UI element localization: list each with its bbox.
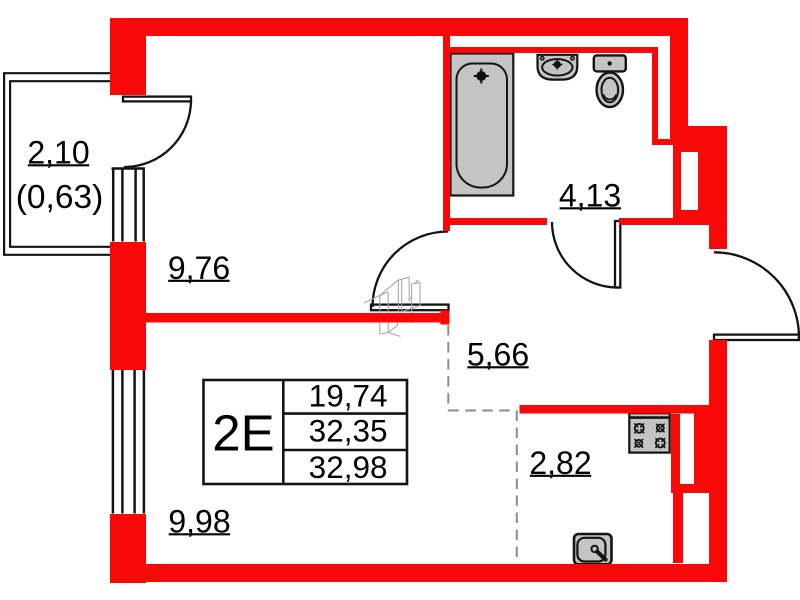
svg-text:(0,63): (0,63) (16, 179, 104, 216)
svg-text:2E: 2E (212, 405, 274, 462)
svg-text:19,74: 19,74 (309, 378, 388, 414)
svg-text:32,98: 32,98 (309, 449, 388, 485)
svg-text:32,35: 32,35 (309, 413, 388, 449)
